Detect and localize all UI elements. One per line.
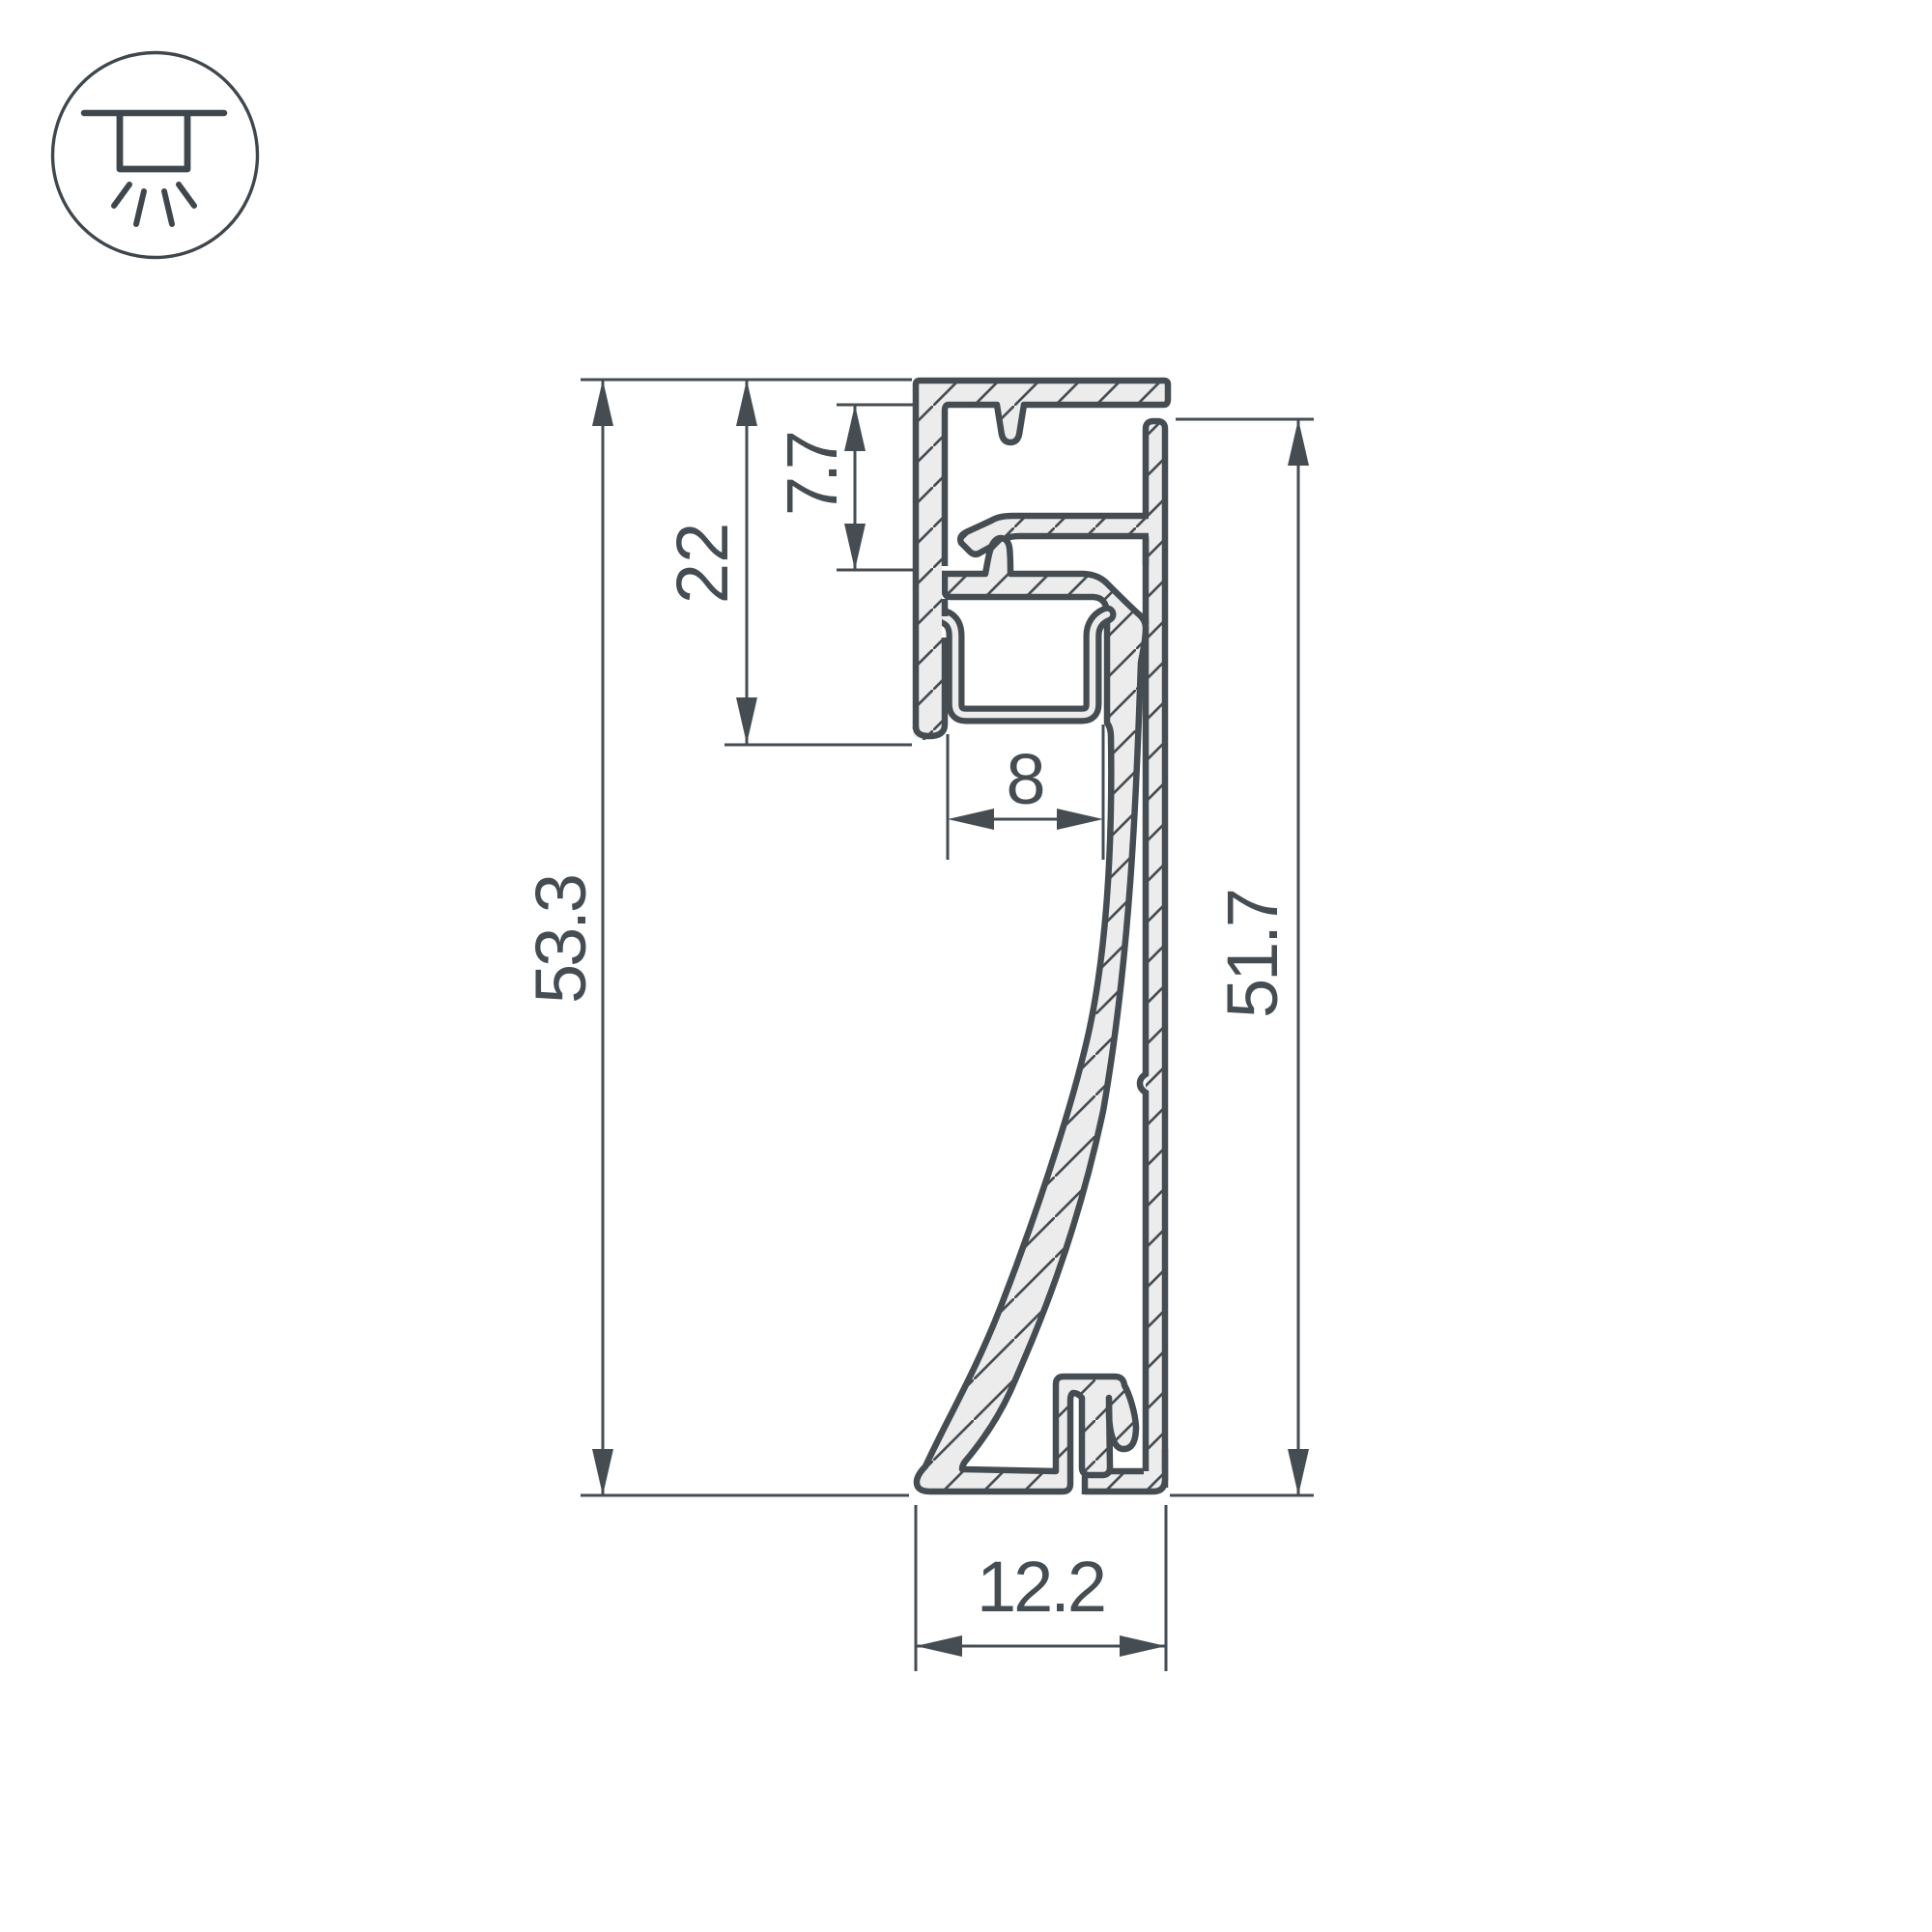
- svg-text:8: 8: [1006, 739, 1045, 819]
- svg-text:51.7: 51.7: [1212, 891, 1293, 1018]
- svg-text:53.3: 53.3: [521, 876, 601, 1004]
- svg-text:7.7: 7.7: [772, 433, 852, 516]
- svg-text:22: 22: [662, 523, 744, 605]
- svg-text:12.2: 12.2: [977, 1547, 1104, 1627]
